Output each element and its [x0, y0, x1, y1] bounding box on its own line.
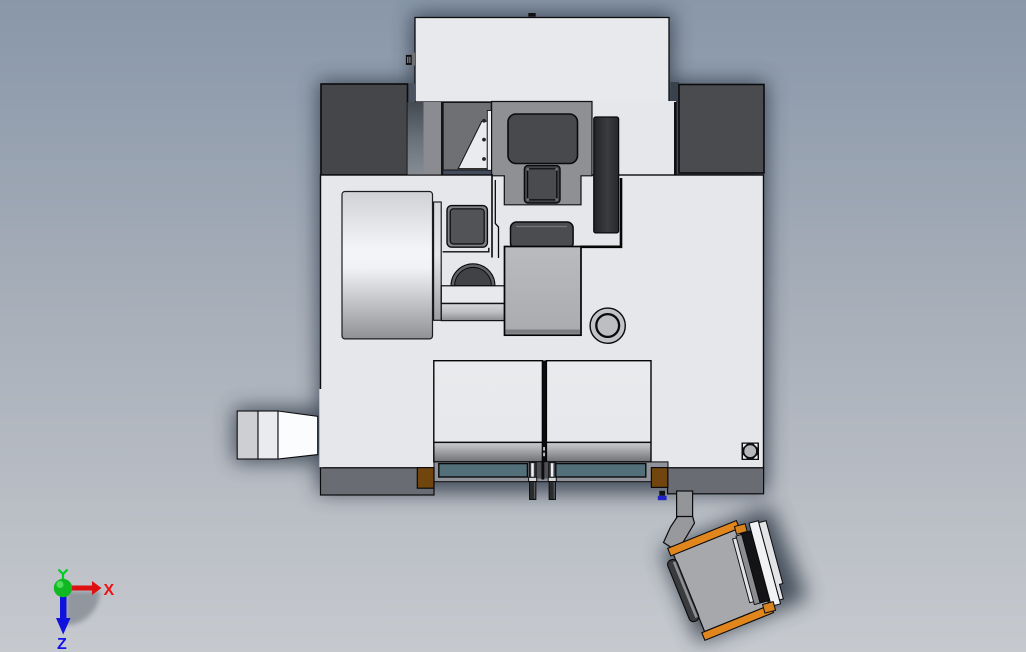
svg-text:X: X — [104, 582, 115, 599]
svg-text:Z: Z — [57, 636, 67, 652]
